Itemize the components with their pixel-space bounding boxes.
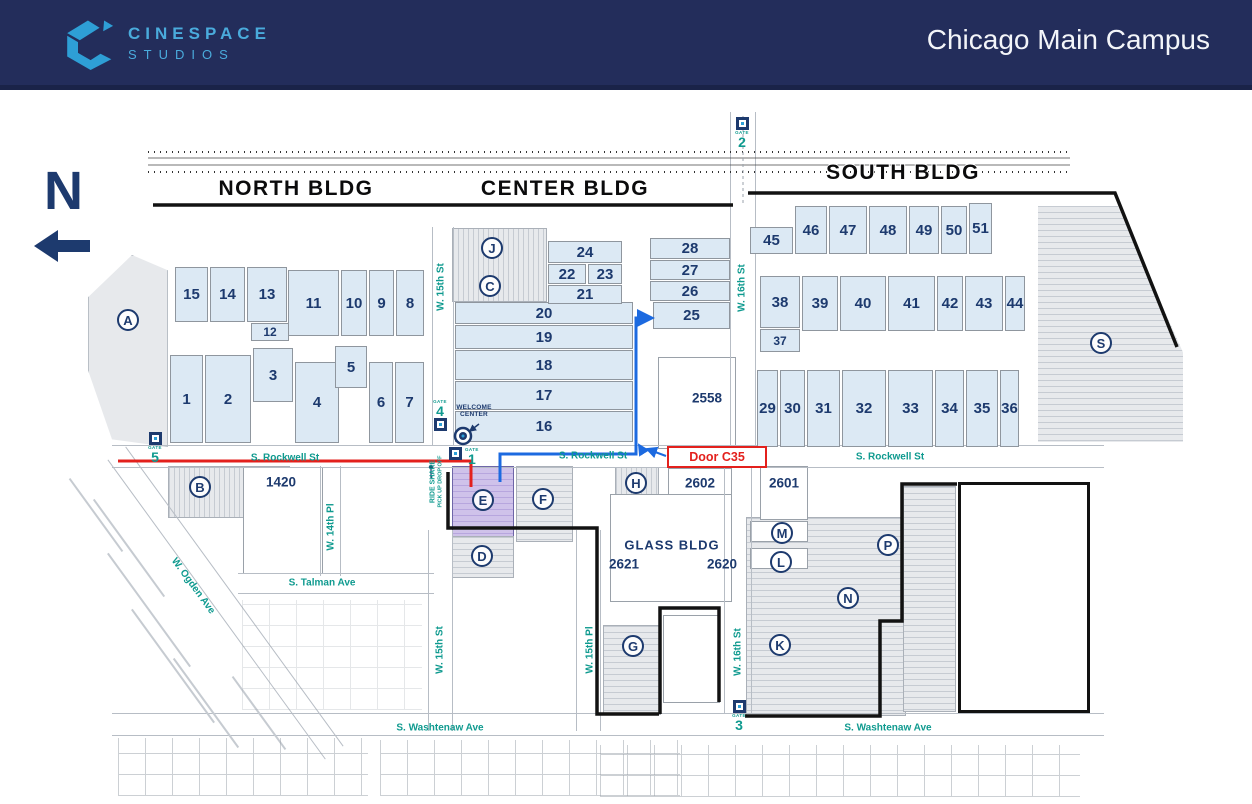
address-2558: 2558	[692, 391, 722, 406]
stage-number: 27	[682, 263, 699, 278]
street-label: S. Washtenaw Ave	[844, 723, 931, 734]
stage-number: 45	[763, 233, 780, 248]
stage-number: 51	[972, 221, 989, 236]
stage-23: 23	[588, 264, 622, 284]
stage-35: 35	[966, 370, 998, 447]
stage-49: 49	[909, 206, 939, 254]
lot-circle-D: D	[471, 545, 493, 567]
stage-25: 25	[653, 302, 730, 329]
stage-37: 37	[760, 329, 800, 352]
north-arrow-icon	[32, 226, 94, 268]
gate-1: GATE1	[449, 447, 479, 466]
address-2621: 2621	[609, 557, 639, 572]
address-2620: 2620	[707, 557, 737, 572]
rideshare-line1: RIDE SHARE	[430, 448, 438, 514]
gate-icon	[733, 700, 746, 713]
rideshare-line2: PICK UP DROP OFF	[438, 448, 445, 514]
street-label: S. Rockwell St	[856, 452, 924, 463]
blocks-talman-south	[242, 600, 422, 710]
stage-19: 19	[455, 325, 633, 349]
stage-50: 50	[941, 206, 967, 254]
address-1420: 1420	[266, 475, 296, 490]
rideshare-label: RIDE SHARE PICK UP DROP OFF	[430, 448, 445, 514]
lot-circle-H: H	[625, 472, 647, 494]
stage-number: 39	[812, 296, 829, 311]
stage-14: 14	[210, 267, 245, 322]
gate-number: 3	[735, 719, 743, 732]
stage-number: 17	[536, 388, 553, 403]
lot-circle-L: L	[770, 551, 792, 573]
stage-44: 44	[1005, 276, 1025, 331]
address-2601: 2601	[769, 476, 799, 491]
stage-number: 36	[1001, 401, 1018, 416]
residential-blocks-east	[600, 745, 1080, 797]
stage-number: 42	[942, 296, 959, 311]
stage-number: 5	[347, 360, 355, 375]
stage-36: 36	[1000, 370, 1019, 447]
stage-number: 23	[597, 267, 614, 282]
gate-number: 5	[151, 451, 159, 464]
door-c35-callout: Door C35	[667, 446, 767, 468]
lot-circle-P: P	[877, 534, 899, 556]
stage-number: 18	[536, 358, 553, 373]
stage-number: 37	[773, 335, 786, 347]
stage-number: 35	[974, 401, 991, 416]
gate-number: 2	[738, 136, 746, 149]
lot-circle-K: K	[769, 634, 791, 656]
central-parking-block	[663, 615, 720, 703]
stage-number: 11	[306, 296, 322, 311]
stage-number: 19	[536, 330, 553, 345]
stage-1: 1	[170, 355, 203, 443]
stage-41: 41	[888, 276, 935, 331]
gate-icon	[736, 117, 749, 130]
lot-circle-B: B	[189, 476, 211, 498]
stage-27: 27	[650, 260, 730, 280]
street-label: W. 16th St	[737, 264, 748, 312]
stage-32: 32	[842, 370, 886, 447]
street-label: S. Rockwell St	[251, 453, 319, 464]
stage-42: 42	[937, 276, 963, 331]
stage-number: 13	[259, 287, 276, 302]
north-letter: N	[44, 160, 83, 222]
stage-number: 28	[682, 241, 699, 256]
stage-number: 15	[183, 287, 200, 302]
lot-circle-S: S	[1090, 332, 1112, 354]
street-label: W. 15th St	[435, 626, 446, 674]
stage-number: 20	[536, 306, 553, 321]
stage-number: 48	[880, 223, 897, 238]
stage-43: 43	[965, 276, 1003, 331]
stage-number: 21	[577, 287, 594, 302]
stage-3: 3	[253, 348, 293, 402]
address-2602: 2602	[685, 476, 715, 491]
gate-2: GATE2	[730, 117, 754, 149]
stage-34: 34	[935, 370, 964, 447]
stage-2: 2	[205, 355, 251, 443]
stage-number: 50	[946, 223, 963, 238]
gate-number: 1	[468, 453, 476, 466]
stage-18: 18	[455, 350, 633, 380]
stage-number: 38	[772, 295, 789, 310]
stage-9: 9	[369, 270, 394, 336]
lot-circle-G: G	[622, 635, 644, 657]
stage-number: 22	[559, 267, 576, 282]
building-2601	[760, 466, 808, 520]
gate-number: 4	[436, 405, 444, 418]
street-label: S. Talman Ave	[289, 578, 356, 589]
stage-40: 40	[840, 276, 886, 331]
stage-33: 33	[888, 370, 933, 447]
lot-circle-E: E	[472, 489, 494, 511]
stage-5: 5	[335, 346, 367, 388]
area-a-shape	[88, 255, 168, 447]
street-label: W. 14th Pl	[326, 503, 337, 550]
east-building	[958, 482, 1090, 713]
stage-number: 29	[759, 401, 776, 416]
stage-number: 31	[815, 401, 832, 416]
stage-number: 46	[803, 223, 820, 238]
brand-name: CINESPACE	[128, 24, 271, 44]
lot-s-shape	[1038, 206, 1183, 442]
street-label: W. 15th Pl	[585, 626, 596, 673]
cinespace-logo-icon	[60, 16, 114, 70]
stage-46: 46	[795, 206, 827, 254]
stage-number: 49	[916, 223, 933, 238]
stage-22: 22	[548, 264, 586, 284]
stage-15: 15	[175, 267, 208, 322]
stage-10: 10	[341, 270, 367, 336]
gate-3: GATE3	[727, 700, 751, 732]
stage-12: 12	[251, 323, 289, 341]
stage-30: 30	[780, 370, 805, 447]
stage-39: 39	[802, 276, 838, 331]
stage-number: 30	[784, 401, 801, 416]
stage-number: 43	[976, 296, 993, 311]
stage-21: 21	[548, 285, 622, 304]
lot-circle-F: F	[532, 488, 554, 510]
building-header: SOUTH BLDG	[826, 161, 980, 185]
stage-number: 6	[377, 395, 385, 410]
stage-number: 4	[313, 395, 321, 410]
gate-icon	[149, 432, 162, 445]
stage-number: 33	[902, 401, 919, 416]
stage-number: 12	[263, 326, 276, 338]
stage-number: 47	[840, 223, 857, 238]
stage-13: 13	[247, 267, 287, 322]
stage-number: 32	[856, 401, 873, 416]
page-title: Chicago Main Campus	[927, 24, 1210, 56]
campus-map-page: N WELCOME CENTER RIDE SHARE PICK UP DROP…	[0, 0, 1252, 804]
stage-28: 28	[650, 238, 730, 259]
stage-number: 9	[377, 296, 385, 311]
welcome-center-label: WELCOME CENTER	[447, 404, 501, 419]
residential-blocks-west	[118, 738, 368, 796]
stage-number: 41	[903, 296, 920, 311]
gate-5: GATE5	[143, 432, 167, 464]
gate-icon	[449, 447, 462, 460]
lot-p-shape	[903, 486, 956, 712]
lot-circle-N: N	[837, 587, 859, 609]
gate-4: GATE4	[428, 399, 452, 431]
stage-31: 31	[807, 370, 840, 447]
stage-29: 29	[757, 370, 778, 447]
stage-8: 8	[396, 270, 424, 336]
lot-circle-A: A	[117, 309, 139, 331]
stage-number: 7	[405, 395, 413, 410]
street-label: W. 15th St	[436, 263, 447, 311]
stage-number: 2	[224, 392, 232, 407]
stage-number: 14	[219, 287, 236, 302]
stage-38: 38	[760, 276, 800, 328]
stage-number: 25	[683, 308, 700, 323]
stage-number: 10	[346, 296, 363, 311]
building-header: CENTER BLDG	[481, 177, 649, 201]
stage-4: 4	[295, 362, 339, 443]
stage-26: 26	[650, 281, 730, 301]
street-label: W. 16th St	[733, 628, 744, 676]
lot-circle-M: M	[771, 522, 793, 544]
brand-sub: STUDIOS	[128, 47, 271, 62]
stage-number: 24	[577, 245, 594, 260]
stage-number: 8	[406, 296, 414, 311]
brand: CINESPACE STUDIOS	[60, 16, 271, 70]
stage-48: 48	[869, 206, 907, 254]
street-label: S. Washtenaw Ave	[396, 723, 483, 734]
header: CINESPACE STUDIOS Chicago Main Campus	[0, 0, 1252, 90]
stage-number: 34	[941, 401, 958, 416]
building-header: NORTH BLDG	[219, 177, 374, 201]
stage-24: 24	[548, 241, 622, 263]
lot-circle-C: C	[479, 275, 501, 297]
stage-number: 1	[182, 392, 190, 407]
campus-map: N WELCOME CENTER RIDE SHARE PICK UP DROP…	[0, 0, 1252, 804]
stage-number: 40	[855, 296, 872, 311]
lot-circle-J: J	[481, 237, 503, 259]
glass-bldg-label: GLASS BLDG	[624, 538, 719, 553]
gate-icon	[434, 418, 447, 431]
stage-51: 51	[969, 203, 992, 254]
welcome-line2: CENTER	[447, 411, 501, 418]
stage-45: 45	[750, 227, 793, 254]
welcome-line1: WELCOME	[447, 404, 501, 411]
street-label: S. Rockwell St	[559, 451, 627, 462]
stage-number: 16	[536, 419, 553, 434]
stage-6: 6	[369, 362, 393, 443]
stage-number: 44	[1007, 296, 1024, 311]
stage-7: 7	[395, 362, 424, 443]
stage-number: 26	[682, 284, 699, 299]
road-16th-lower	[724, 467, 752, 714]
stage-11: 11	[288, 270, 339, 336]
stage-number: 3	[269, 368, 277, 383]
stage-47: 47	[829, 206, 867, 254]
stage-20: 20	[455, 302, 633, 324]
